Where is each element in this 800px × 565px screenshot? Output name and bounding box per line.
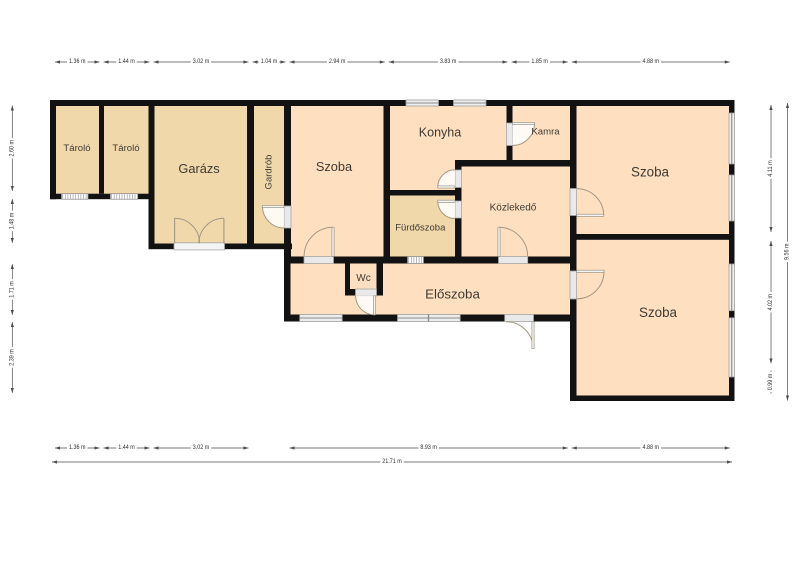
svg-text:4.88 m: 4.88 m bbox=[643, 445, 660, 451]
svg-text:1.36 m: 1.36 m bbox=[69, 59, 86, 65]
svg-text:Előszoba: Előszoba bbox=[425, 287, 480, 302]
svg-text:2.39 m: 2.39 m bbox=[9, 349, 15, 366]
svg-text:4.88 m: 4.88 m bbox=[643, 59, 660, 65]
svg-text:Szoba: Szoba bbox=[631, 164, 670, 179]
svg-text:0.99 m: 0.99 m bbox=[768, 374, 774, 391]
svg-text:Szoba: Szoba bbox=[639, 305, 678, 320]
svg-text:2.94 m: 2.94 m bbox=[329, 59, 346, 65]
svg-text:1.36 m: 1.36 m bbox=[69, 445, 86, 451]
svg-text:1.48 m: 1.48 m bbox=[9, 213, 15, 230]
svg-text:Fürdőszoba: Fürdőszoba bbox=[395, 223, 446, 234]
svg-text:Konyha: Konyha bbox=[419, 126, 461, 140]
svg-text:1.44 m: 1.44 m bbox=[118, 59, 135, 65]
svg-text:Kamra: Kamra bbox=[531, 127, 560, 138]
svg-text:8.93 m: 8.93 m bbox=[420, 445, 437, 451]
svg-text:1.71 m: 1.71 m bbox=[9, 281, 15, 298]
svg-text:Garázs: Garázs bbox=[178, 161, 219, 176]
svg-text:Szoba: Szoba bbox=[316, 159, 353, 174]
svg-text:Wc: Wc bbox=[356, 273, 370, 284]
svg-text:3.02 m: 3.02 m bbox=[193, 59, 210, 65]
svg-text:3.02 m: 3.02 m bbox=[193, 445, 210, 451]
svg-text:21.71 m: 21.71 m bbox=[382, 459, 402, 465]
svg-text:Tároló: Tároló bbox=[63, 143, 90, 154]
svg-text:9.56 m: 9.56 m bbox=[785, 243, 791, 260]
svg-text:1.44 m: 1.44 m bbox=[118, 445, 135, 451]
svg-text:Közlekedő: Közlekedő bbox=[490, 203, 537, 214]
svg-text:Gardrób: Gardrób bbox=[264, 155, 275, 190]
svg-text:Tároló: Tároló bbox=[112, 143, 139, 154]
svg-text:1.85 m: 1.85 m bbox=[531, 59, 548, 65]
svg-text:3.83 m: 3.83 m bbox=[440, 59, 457, 65]
svg-text:4.11 m: 4.11 m bbox=[768, 160, 774, 177]
svg-text:1.04 m: 1.04 m bbox=[261, 59, 278, 65]
svg-text:4.02 m: 4.02 m bbox=[768, 294, 774, 311]
svg-text:2.60 m: 2.60 m bbox=[9, 140, 15, 157]
